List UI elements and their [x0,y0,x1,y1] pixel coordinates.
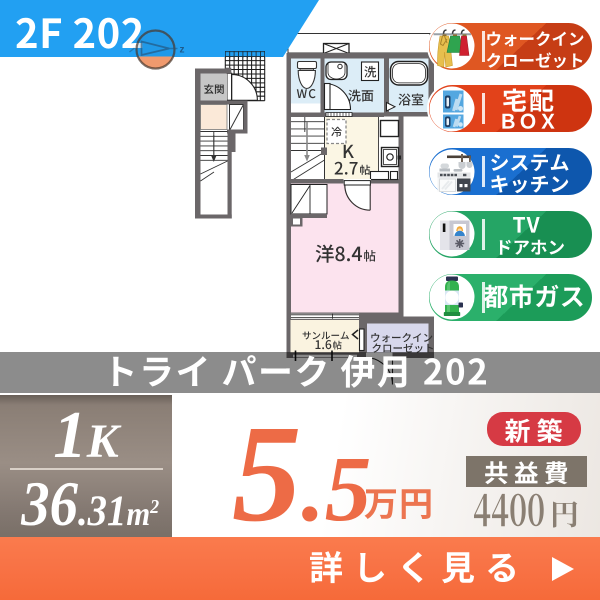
svg-text:z: z [180,45,185,56]
